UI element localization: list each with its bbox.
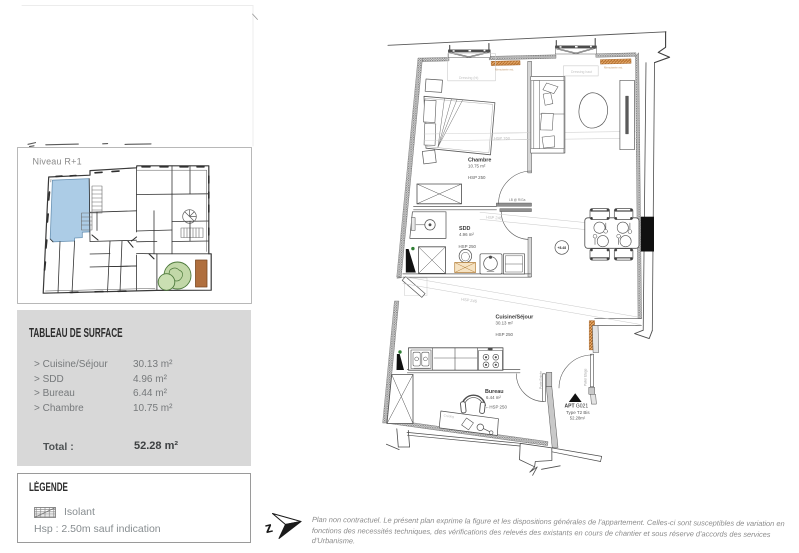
- svg-text:30.13 m²: 30.13 m²: [496, 320, 514, 325]
- svg-text:HSP 250: HSP 250: [459, 244, 477, 249]
- svg-text:Palier Etage: Palier Etage: [584, 368, 588, 386]
- svg-text:LB @ R/Ga: LB @ R/Ga: [509, 198, 526, 202]
- svg-text:Bureau: Bureau: [485, 389, 504, 395]
- svg-text:HSP 245: HSP 245: [461, 297, 478, 304]
- svg-text:HSP 250: HSP 250: [468, 175, 486, 180]
- svg-text:Type T2 Bis: Type T2 Bis: [566, 410, 590, 415]
- svg-text:4.96 m²: 4.96 m²: [459, 232, 474, 237]
- svg-text:Chambre: Chambre: [468, 158, 491, 164]
- svg-text:Porte Entrée: Porte Entrée: [539, 371, 543, 389]
- svg-text:APT G021: APT G021: [565, 404, 589, 410]
- svg-text:z: z: [263, 519, 274, 537]
- svg-text:Menuiserie ext.: Menuiserie ext.: [604, 66, 623, 70]
- svg-text:SDD: SDD: [459, 226, 470, 232]
- svg-text:Niveau R+1: Niveau R+1: [33, 157, 82, 167]
- svg-text:52.28m²: 52.28m²: [570, 416, 586, 421]
- svg-text:Dressing haut: Dressing haut: [571, 70, 592, 74]
- svg-text:HSP 240: HSP 240: [486, 215, 503, 221]
- svg-text:Menuiserie ext.: Menuiserie ext.: [495, 68, 514, 72]
- svg-text:400: 400: [488, 347, 493, 351]
- svg-text:Cuisine/Séjour: Cuisine/Séjour: [496, 314, 535, 320]
- svg-text:6.44 m²: 6.44 m²: [486, 395, 501, 400]
- svg-text:HSP 250: HSP 250: [496, 332, 514, 337]
- svg-text:10.75 m²: 10.75 m²: [468, 164, 486, 169]
- svg-text:+8.48: +8.48: [558, 246, 567, 250]
- svg-text:Dressing (ht): Dressing (ht): [459, 76, 478, 80]
- svg-text:←HSP 250: ←HSP 250: [485, 405, 507, 410]
- svg-text:HSP 760: HSP 760: [494, 136, 511, 141]
